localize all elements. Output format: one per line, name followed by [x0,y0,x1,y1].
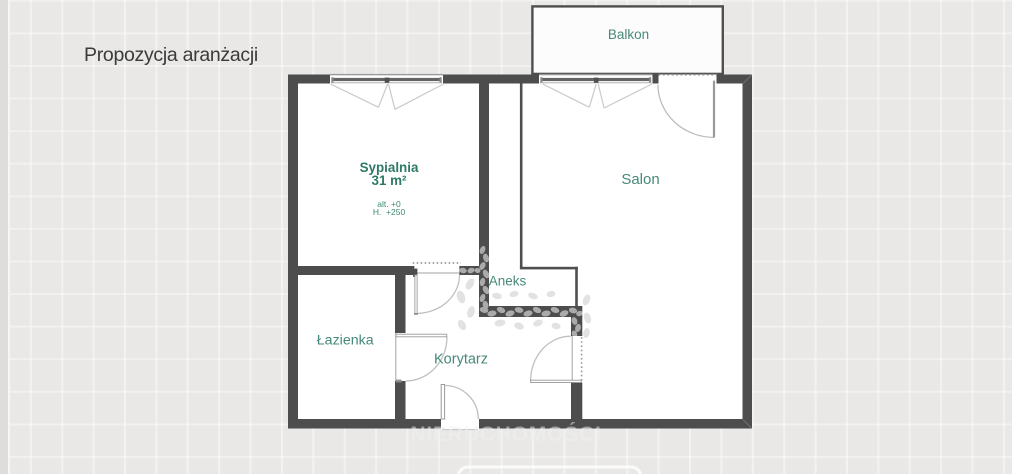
svg-text:Łazienka: Łazienka [317,332,374,348]
svg-text:31 m²: 31 m² [372,173,408,188]
svg-text:H. +250: H. +250 [373,207,406,217]
svg-text:Aneks: Aneks [489,274,527,289]
svg-text:Salon: Salon [621,171,659,188]
svg-text:NIERUCHOMOŚCI: NIERUCHOMOŚCI [410,422,601,446]
svg-text:Korytarz: Korytarz [434,352,488,368]
svg-text:Balkon: Balkon [608,27,649,42]
